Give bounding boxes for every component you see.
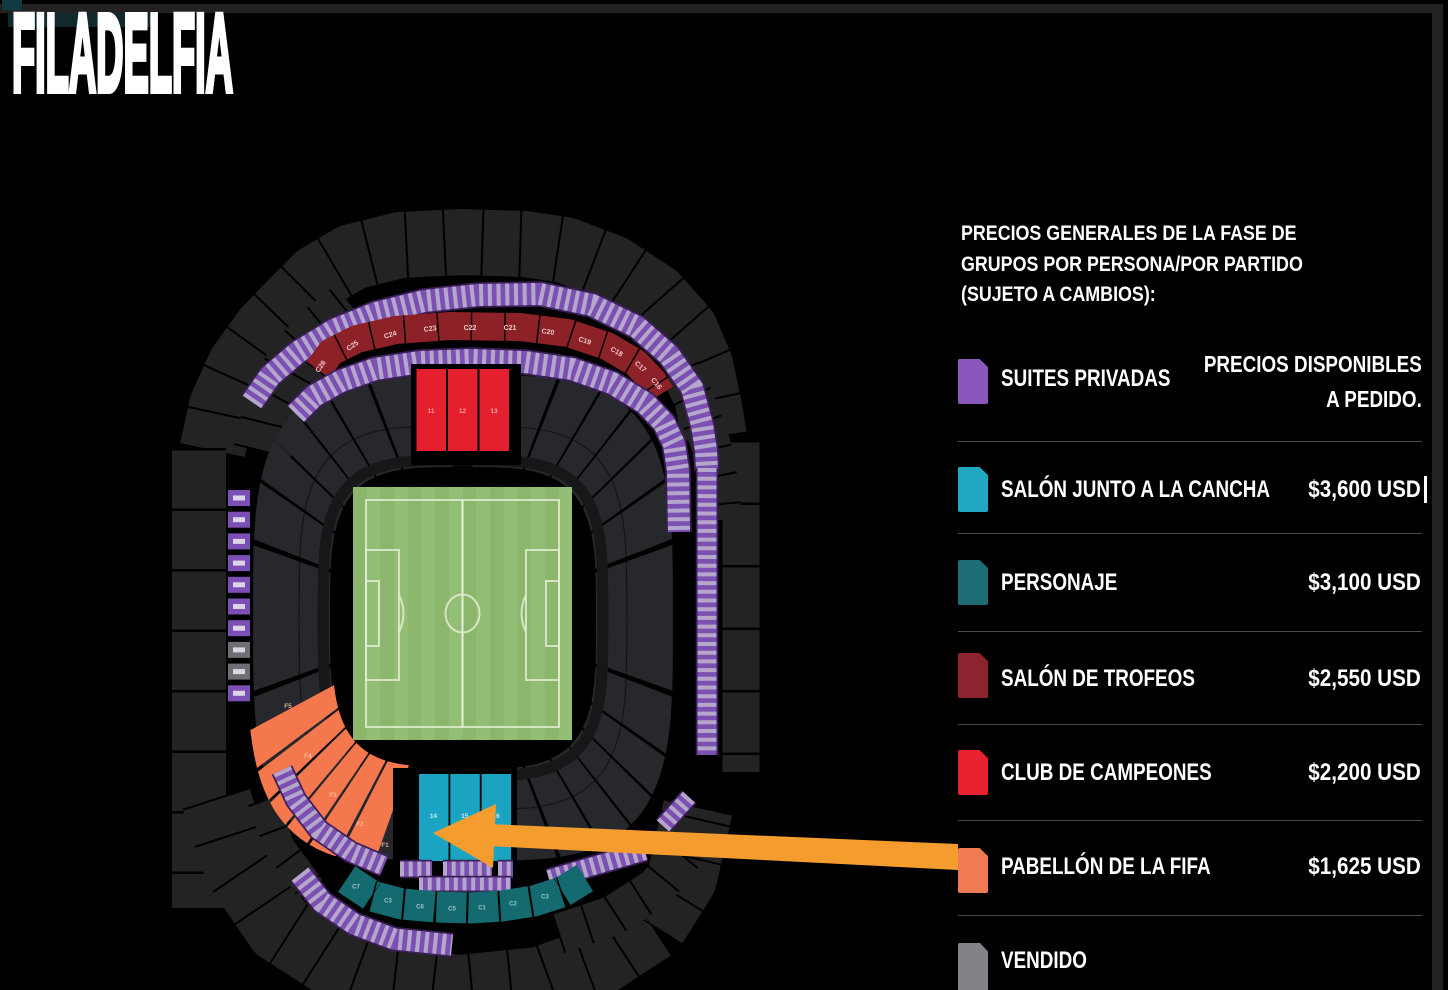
svg-text:C2: C2 — [509, 902, 517, 908]
svg-text:C3: C3 — [541, 895, 549, 901]
svg-text:F4: F4 — [304, 753, 312, 760]
svg-text:11: 11 — [428, 408, 435, 415]
svg-text:C1: C1 — [478, 906, 486, 912]
svg-text:FILADELFIA: FILADELFIA — [12, 0, 233, 115]
svg-text:C6: C6 — [416, 905, 424, 911]
svg-text:C5: C5 — [448, 907, 456, 913]
svg-text:F2: F2 — [356, 821, 364, 828]
svg-text:12: 12 — [459, 408, 467, 415]
svg-text:13: 13 — [490, 408, 498, 415]
svg-text:C22: C22 — [464, 325, 477, 332]
svg-text:C21: C21 — [504, 325, 517, 332]
svg-text:F1: F1 — [381, 842, 389, 849]
svg-text:F3: F3 — [329, 792, 337, 799]
svg-text:C7: C7 — [352, 885, 360, 891]
svg-text:C3: C3 — [384, 899, 392, 905]
svg-text:14: 14 — [430, 813, 438, 820]
svg-text:F5: F5 — [284, 703, 292, 710]
